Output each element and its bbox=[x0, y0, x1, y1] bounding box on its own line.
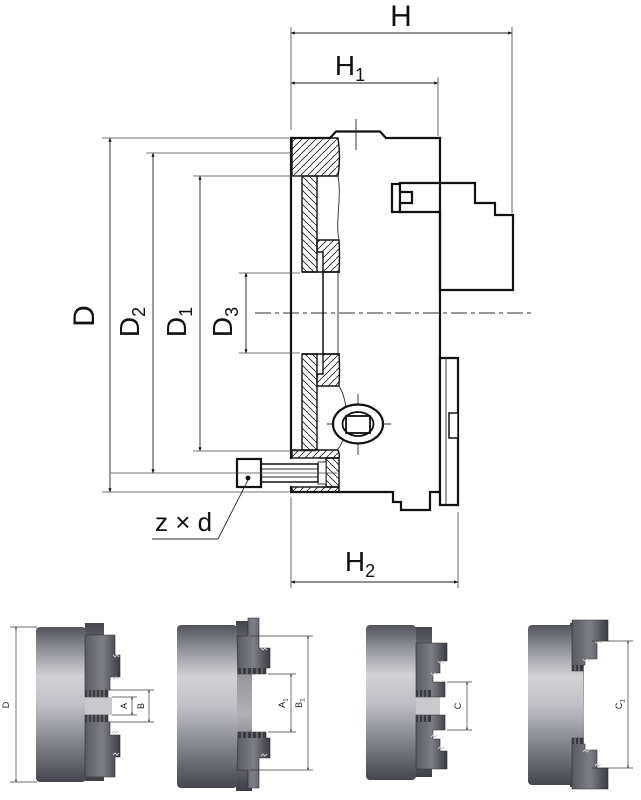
dim-label-D2: D2 bbox=[114, 307, 149, 337]
dimension-B: B bbox=[109, 690, 154, 722]
chuck-technical-drawing: H H1 H2 D D2 D1 D3 z × d bbox=[0, 0, 641, 800]
jaw-assembly-section bbox=[392, 183, 513, 290]
bottom-jaw bbox=[572, 738, 608, 789]
bottom-view-3: C bbox=[330, 613, 490, 799]
dimension-H2: H2 bbox=[291, 497, 458, 588]
dim-label-H1: H1 bbox=[335, 50, 365, 85]
bottom-view-4: C1 bbox=[480, 613, 641, 799]
dim-label-D: D bbox=[68, 305, 101, 327]
dim-label-H: H bbox=[390, 0, 412, 33]
leader-dot bbox=[246, 476, 251, 481]
chuck-body bbox=[177, 625, 237, 788]
dim-label-C1: C1 bbox=[614, 699, 627, 710]
dim-label-zxd: z × d bbox=[155, 507, 212, 537]
main-cross-section-view: H H1 H2 D D2 D1 D3 z × d bbox=[0, 0, 641, 612]
chuck-body bbox=[366, 625, 416, 780]
dim-label-C: C bbox=[453, 702, 463, 709]
center-bore-face bbox=[85, 697, 112, 715]
chuck-body bbox=[36, 627, 86, 782]
dim-label-B: B bbox=[136, 703, 146, 709]
dim-label-D3: D3 bbox=[207, 307, 242, 337]
mounting-screw bbox=[237, 458, 326, 487]
dim-label-H2: H2 bbox=[345, 546, 375, 581]
dim-label-B1: B1 bbox=[294, 698, 307, 708]
top-jaw bbox=[416, 643, 447, 697]
dimension-H1: H1 bbox=[291, 50, 438, 136]
rear-mount-strip bbox=[440, 358, 458, 505]
dimension-C: C bbox=[447, 682, 472, 730]
dimension-C1: C1 bbox=[592, 641, 633, 768]
dim-label-Dv: D bbox=[1, 701, 11, 708]
top-jaw bbox=[572, 620, 608, 671]
dim-label-A: A bbox=[119, 703, 129, 709]
top-jaw bbox=[85, 635, 120, 697]
bottom-view-2: A1 B1 bbox=[170, 613, 330, 799]
dimension-H: H bbox=[291, 0, 512, 213]
dim-label-D1: D1 bbox=[161, 307, 196, 337]
callout-zxd: z × d bbox=[152, 480, 248, 539]
dimension-A1: A1 bbox=[268, 674, 296, 732]
dimension-D-view1: D bbox=[1, 627, 37, 782]
dimension-A: A bbox=[112, 697, 137, 715]
camlock-hole bbox=[327, 394, 391, 455]
bottom-jaw bbox=[85, 715, 120, 777]
dim-label-A1: A1 bbox=[277, 698, 290, 708]
bottom-jaw bbox=[416, 715, 447, 769]
bottom-view-1: D A B bbox=[0, 613, 162, 799]
center-bore-face bbox=[416, 697, 440, 715]
sectioned-flange-hatching bbox=[292, 138, 340, 492]
